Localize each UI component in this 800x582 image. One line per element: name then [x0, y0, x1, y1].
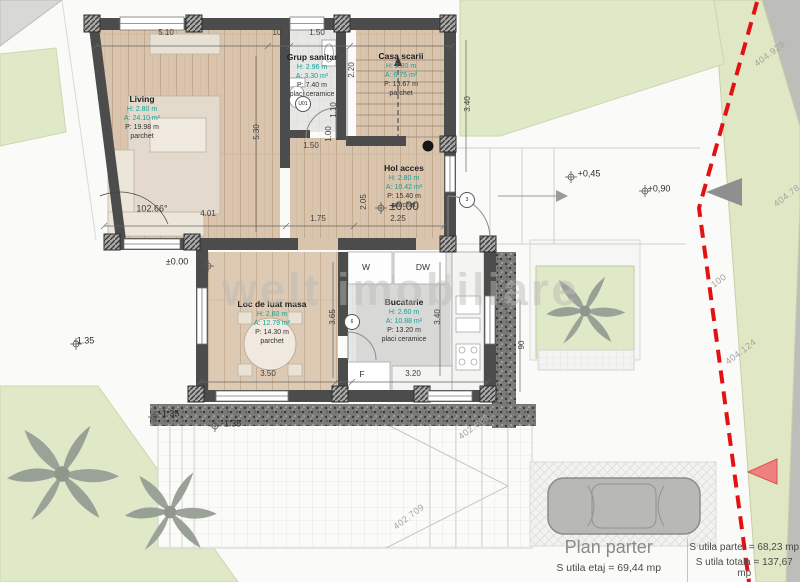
terrace [158, 424, 532, 548]
room-area: A: 6.75 m² [379, 71, 424, 80]
room-perimeter: P: 14.30 m [238, 328, 307, 337]
level-label: +0,45 [578, 170, 601, 179]
window-tag: 3 [459, 192, 475, 208]
room-height: H: 2.60 m [238, 310, 307, 319]
dimension-label: 3.65 [329, 309, 337, 325]
dimension-label: 3.40 [434, 309, 442, 325]
plan-title: Plan parter [530, 538, 687, 558]
room-perimeter: P: 13.20 m [382, 326, 427, 335]
room-info-hol-acces: Hol acces H: 2.80 m A: 10.42 m² P: 15.40… [384, 163, 424, 210]
room-perimeter: P: 15.40 m [384, 192, 424, 201]
dimension-label: 1.00 [325, 126, 333, 142]
room-info-casa-scarii: Casa scarii H: 2.80 m A: 6.75 m² P: 13.6… [379, 51, 424, 98]
appliance-label-dishwasher: DW [416, 263, 430, 272]
dimension-label: 4.01 [200, 210, 216, 218]
dimension-label: 2.25 [390, 215, 406, 223]
level-label: +0,90 [648, 185, 671, 194]
area-etaj: S utila etaj = 69,44 mp [530, 562, 687, 574]
room-name: Casa scarii [379, 51, 424, 62]
level-label: -1.35 [74, 337, 95, 346]
window-tag: 6 [344, 314, 360, 330]
room-area: A: 12.79 m² [238, 319, 307, 328]
room-name: Grup sanitar [287, 52, 338, 63]
room-area: A: 10.42 m² [384, 183, 424, 192]
dimension-label: 2.20 [348, 62, 356, 78]
dimension-label: 1.10 [330, 102, 338, 118]
room-height: H: 2.80 m [384, 174, 424, 183]
room-floor-finish: parchet [379, 89, 424, 98]
room-info-loc-de-luat-masa: Loc de luat masa H: 2.60 m A: 12.79 m² P… [238, 299, 307, 346]
dimension-label: 3.40 [464, 96, 472, 112]
room-perimeter: P: 7.40 m [287, 81, 338, 90]
dimension-label: 1.50 [303, 142, 319, 150]
dimension-label: 10 [273, 29, 282, 37]
dimension-label: 5.30 [253, 124, 261, 140]
room-perimeter: P: 13.67 m [379, 80, 424, 89]
dimension-label: 1.75 [310, 215, 326, 223]
room-name: Hol acces [384, 163, 424, 174]
level-label: -1.35 [159, 410, 180, 419]
level-label: -1.35 [221, 420, 242, 429]
section-marker-icon [423, 141, 434, 152]
dimension-label: 5.10 [158, 29, 174, 37]
room-info-grup-sanitar: Grup sanitar H: 2.96 m A: 3.30 m² P: 7.4… [287, 52, 338, 99]
room-name: Loc de luat masa [238, 299, 307, 310]
room-name: Living [124, 94, 160, 105]
appliance-label-fridge: F [359, 370, 364, 379]
room-area: A: 3.30 m² [287, 72, 338, 81]
room-height: H: 2.96 m [287, 63, 338, 72]
area-parter: S utila parter = 68,23 mp [688, 542, 800, 553]
title-block-left: Plan parter S utila etaj = 69,44 mp [530, 538, 687, 582]
angle-label: 102.66° [136, 205, 167, 214]
dimension-label: 3.20 [405, 370, 421, 378]
room-floor-finish: parchet [238, 337, 307, 346]
dimension-label: 90 [518, 341, 526, 350]
appliance-label-washer: W [362, 263, 370, 272]
room-height: H: 2.60 m [382, 308, 427, 317]
dimension-label: 2.05 [360, 194, 368, 210]
tile-strip [538, 350, 634, 370]
room-floor-finish: parchet [384, 201, 424, 210]
room-floor-finish: parchet [124, 132, 160, 141]
title-block-right: S utila parter = 68,23 mp S utila totala… [687, 538, 800, 582]
car-top-view [548, 478, 700, 534]
room-floor-finish: placi ceramice [382, 335, 427, 344]
room-height: H: 2.80 m [124, 105, 160, 114]
room-area: A: 10.88 m² [382, 317, 427, 326]
room-info-living: Living H: 2.80 m A: 24.10 m² P: 19.98 m … [124, 94, 160, 141]
area-totala: S utila totala = 137,67 mp [688, 557, 800, 579]
dimension-label: 3.50 [260, 370, 276, 378]
floor-plan-page: Living H: 2.80 m A: 24.10 m² P: 19.98 m … [0, 0, 800, 582]
room-floor-finish: placi ceramice [287, 90, 338, 99]
dimension-label: 1.50 [309, 29, 325, 37]
title-block: Plan parter S utila etaj = 69,44 mp S ut… [530, 538, 800, 582]
room-area: A: 24.10 m² [124, 114, 160, 123]
room-height: H: 2.80 m [379, 62, 424, 71]
room-name: Bucatarie [382, 297, 427, 308]
room-perimeter: P: 19.98 m [124, 123, 160, 132]
room-info-bucatarie: Bucatarie H: 2.60 m A: 10.88 m² P: 13.20… [382, 297, 427, 344]
level-label: ±0.00 [166, 258, 188, 267]
